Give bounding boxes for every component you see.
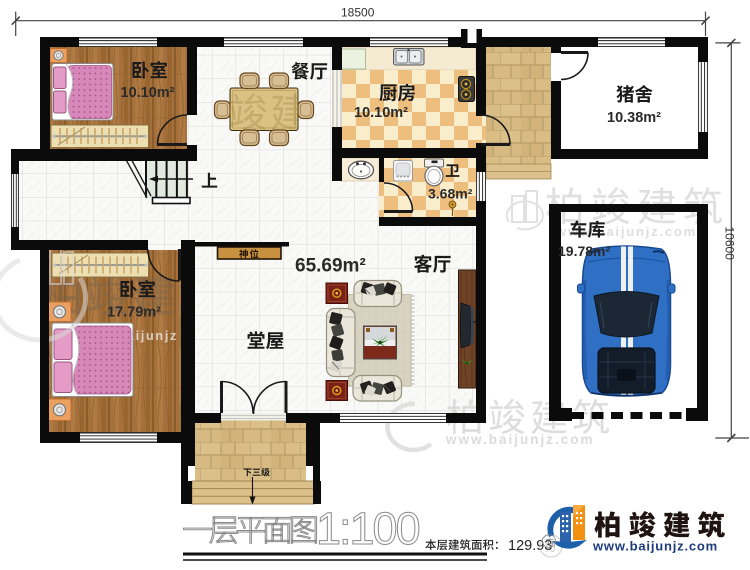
- svg-text:10.10m²: 10.10m²: [121, 85, 175, 101]
- svg-text:3.68m²: 3.68m²: [428, 186, 473, 202]
- svg-text:19.78m²: 19.78m²: [558, 243, 610, 259]
- svg-text:17.79m²: 17.79m²: [107, 305, 161, 321]
- svg-text:129.93: 129.93: [508, 538, 552, 554]
- svg-text:www.baijunjz.com: www.baijunjz.com: [445, 432, 595, 447]
- svg-text:www.baijunjz.com: www.baijunjz.com: [592, 539, 718, 554]
- svg-text:10600: 10600: [723, 227, 737, 261]
- svg-text:65.69m²: 65.69m²: [295, 256, 366, 277]
- svg-text:18500: 18500: [341, 6, 375, 20]
- svg-text:10.10m²: 10.10m²: [354, 105, 408, 121]
- svg-text:www.baijunjz.com: www.baijunjz.com: [555, 224, 697, 239]
- svg-text:1:100: 1:100: [316, 503, 420, 554]
- svg-text:10.38m²: 10.38m²: [607, 110, 661, 126]
